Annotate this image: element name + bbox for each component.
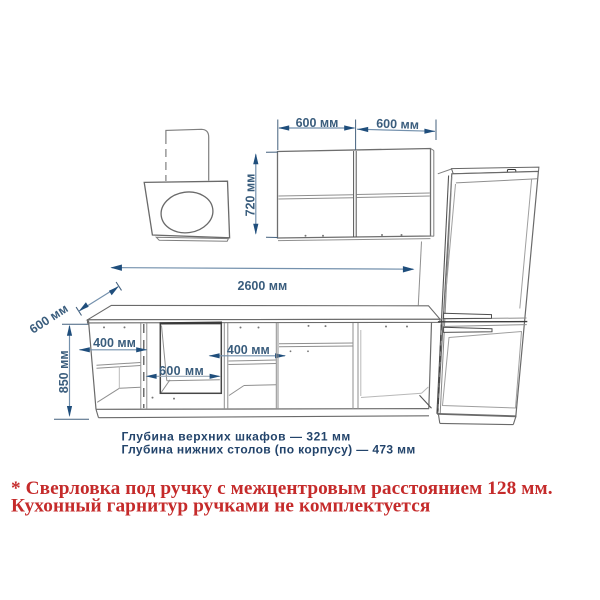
svg-text:Глубина нижних столов (по корп: Глубина нижних столов (по корпусу) — 473… [122,443,416,457]
svg-text:600 мм: 600 мм [296,116,339,130]
svg-text:720 мм: 720 мм [244,174,258,217]
svg-text:600 мм: 600 мм [376,117,419,132]
svg-text:Кухонный гарнитур ручками не к: Кухонный гарнитур ручками не комплектует… [11,495,430,516]
svg-text:2600 мм: 2600 мм [238,279,288,293]
svg-text:600 мм: 600 мм [27,301,71,336]
svg-text:Глубина верхних шкафов — 321 м: Глубина верхних шкафов — 321 мм [122,430,351,444]
svg-text:850 мм: 850 мм [57,350,71,393]
svg-text:600 мм: 600 мм [159,364,204,378]
svg-text:400 мм: 400 мм [227,343,270,357]
svg-text:400 мм: 400 мм [93,336,136,350]
